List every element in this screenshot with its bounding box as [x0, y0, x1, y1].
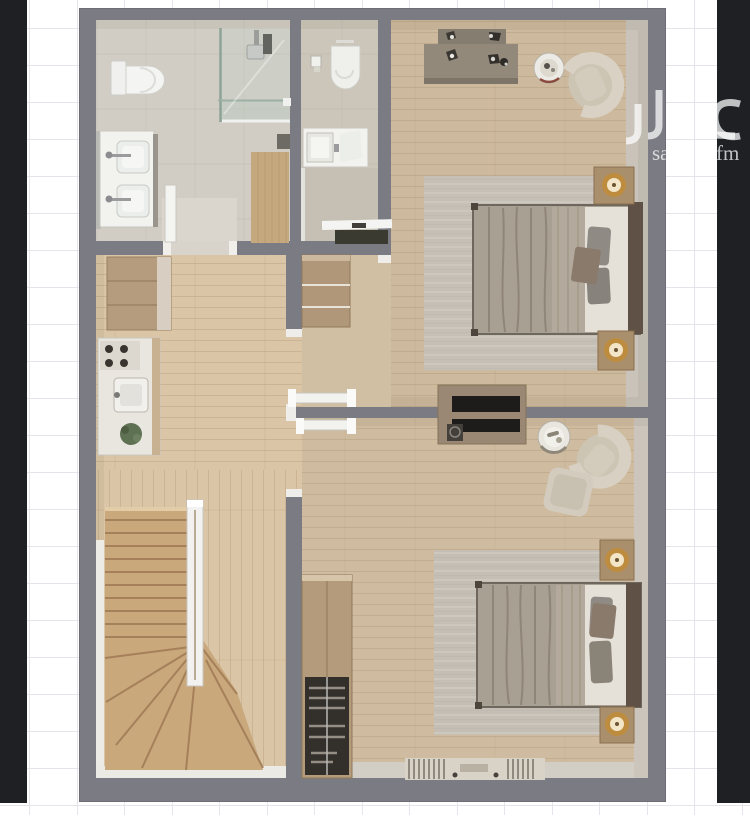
svg-text:fm: fm [716, 141, 739, 165]
svg-text:sa: sa [652, 141, 670, 165]
